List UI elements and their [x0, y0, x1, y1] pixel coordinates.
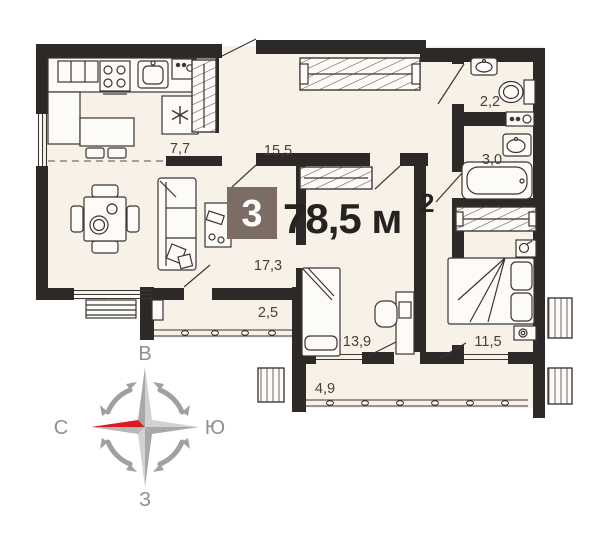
radiator: [86, 300, 136, 318]
area-label-hallway: 15,5: [264, 143, 292, 159]
rooms-badge-number: 3: [241, 193, 262, 235]
compass-letter-top: В: [138, 343, 151, 365]
area-label-wc: 2,2: [480, 94, 500, 110]
rooms-badge: 3: [227, 187, 277, 239]
floor-plan-svg: Avito: [0, 0, 605, 540]
area-label-bedroom2: 11,5: [474, 334, 501, 350]
toilet-icon: [499, 80, 535, 104]
wc-sink-icon: [471, 58, 497, 75]
bedroom2-wardrobe: [456, 207, 536, 231]
kitchen-cabinet: [58, 61, 98, 82]
total-area-sup: 2: [420, 188, 434, 218]
bathroom-sink-icon: [503, 134, 531, 156]
sofa: [158, 178, 196, 270]
ac-unit-right-lower: [548, 368, 572, 404]
area-label-balcony: 4,9: [315, 381, 335, 397]
floor-plan: Avito: [0, 0, 605, 540]
ac-unit-left: [258, 368, 284, 402]
compass-star: [91, 367, 199, 487]
bed-single: [302, 268, 340, 356]
compass-rose: В Ю С З: [54, 343, 225, 511]
compass-letter-left: С: [54, 417, 68, 439]
kitchen-sink-icon: [138, 61, 168, 88]
kitchen-wardrobe: [192, 60, 216, 132]
compass-north-pointer: [91, 420, 145, 427]
hallway-wardrobe: [300, 58, 420, 90]
bedroom1-wardrobe: [300, 167, 372, 189]
device-box: [514, 326, 536, 340]
area-label-living: 17,3: [254, 258, 282, 274]
area-label-bathroom: 3,0: [482, 152, 502, 168]
washing-machine-icon: [506, 112, 534, 126]
total-area-value: 78,5 м: [283, 195, 401, 242]
bed-double: [448, 258, 534, 324]
nightstand: [516, 240, 536, 257]
loggia-cabinet: [152, 300, 163, 320]
stove-icon: [100, 61, 130, 94]
area-label-loggia: 2,5: [258, 305, 278, 321]
area-label-kitchen: 7,7: [170, 141, 190, 157]
area-label-bedroom1: 13,9: [343, 334, 371, 350]
ac-unit-right-upper: [548, 298, 572, 338]
compass-letter-bottom: З: [139, 489, 151, 511]
compass-letter-right: Ю: [205, 417, 225, 439]
